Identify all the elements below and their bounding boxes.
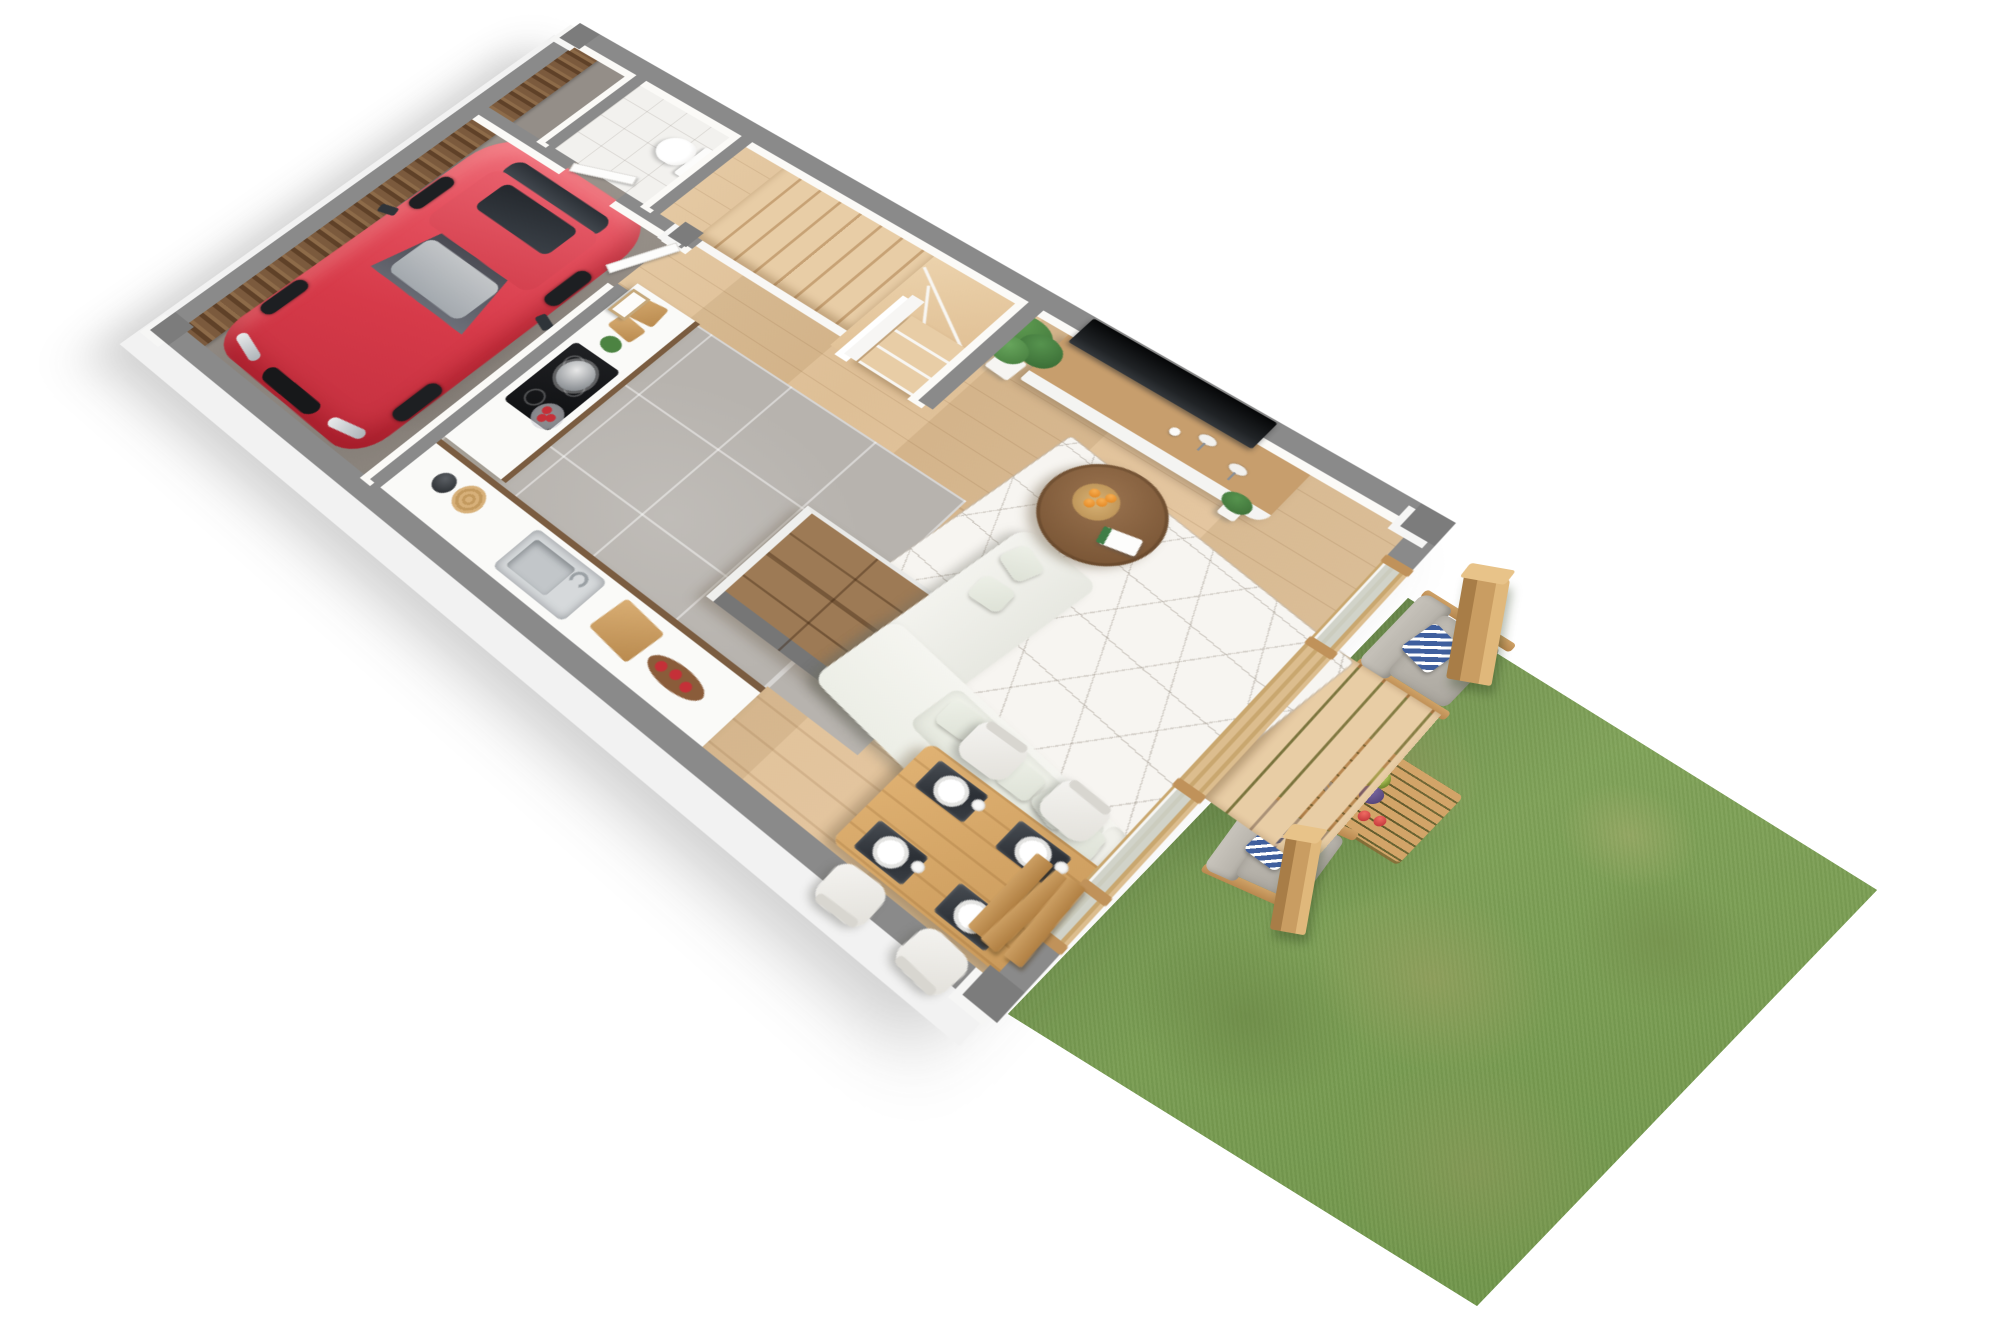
apple [652, 659, 670, 674]
book [1095, 526, 1143, 557]
chair-back [813, 892, 860, 929]
apple [667, 667, 685, 682]
scene-canvas: 3D cutaway floor plan render — ground fl… [0, 0, 2000, 1333]
apple [677, 680, 695, 695]
island-drawer-seam [778, 558, 879, 651]
chair-back [893, 954, 938, 997]
